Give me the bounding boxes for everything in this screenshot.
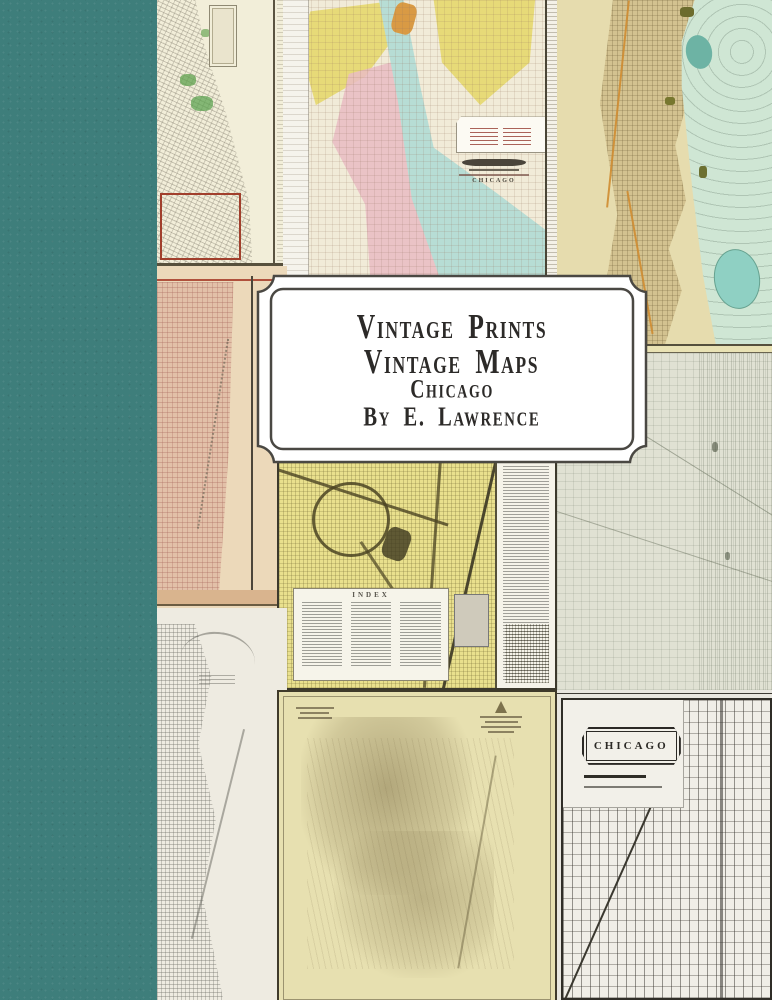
text-lines xyxy=(488,731,514,733)
cartouche-ribbon xyxy=(462,159,525,166)
inset-block xyxy=(454,594,489,646)
seal-icon xyxy=(495,701,507,713)
text-lines xyxy=(400,602,441,668)
text-lines xyxy=(480,716,522,718)
city-block-texture xyxy=(157,282,251,592)
text-lines xyxy=(485,721,518,723)
map-margin xyxy=(157,590,287,606)
title-line-3: Chicago xyxy=(410,377,494,405)
park-patch xyxy=(680,7,694,17)
map-margin xyxy=(283,0,309,284)
note-block xyxy=(296,704,335,719)
index-heading: INDEX xyxy=(294,591,449,599)
index-columns xyxy=(294,599,449,668)
dense-grid-texture xyxy=(699,353,772,690)
cartouche-title: CHICAGO xyxy=(450,178,538,184)
text-lines xyxy=(481,726,521,728)
map-tile-center-detail: INDEX xyxy=(277,456,557,690)
map-margin xyxy=(545,0,557,284)
legend-column xyxy=(503,128,531,145)
text-lines xyxy=(296,707,335,709)
park-patch xyxy=(712,442,718,452)
text-lines xyxy=(302,602,343,668)
title-plate: Vintage Prints Vintage Maps Chicago By E… xyxy=(256,274,648,464)
shoreline-shape xyxy=(219,282,251,592)
map-tile-top-left xyxy=(157,0,287,266)
avenue-line xyxy=(720,700,723,998)
legend-column xyxy=(470,128,498,145)
title-text-block: Vintage Prints Vintage Maps Chicago By E… xyxy=(256,274,648,464)
map-border-line xyxy=(557,693,772,694)
text-lines xyxy=(351,602,392,668)
red-plat-outline xyxy=(160,193,241,260)
map-border-line xyxy=(251,276,253,592)
dense-city-cluster xyxy=(505,624,549,684)
map-inset-cartouche xyxy=(209,5,237,67)
book-cover: CHICAGO xyxy=(0,0,772,1000)
map-tile-bottom-right: CHICAGO xyxy=(557,690,772,1000)
map-frame: CHICAGO xyxy=(561,698,772,1000)
author-line: By E. Lawrence xyxy=(364,403,541,433)
map-border-line xyxy=(273,0,275,266)
text-lines xyxy=(199,675,235,687)
index-panel: INDEX xyxy=(293,588,450,682)
park-patch xyxy=(725,552,730,560)
legend-line xyxy=(584,786,663,788)
survey-line-texture xyxy=(307,738,514,969)
map-tile-bottom-left xyxy=(157,608,287,1000)
legend-box xyxy=(456,116,546,153)
text-lines xyxy=(300,712,329,714)
park-patch xyxy=(699,166,707,178)
map-title-box: CHICAGO xyxy=(582,727,681,765)
book-spine xyxy=(0,0,157,1000)
map-tile-top-center: CHICAGO xyxy=(283,0,557,284)
map-title-text: CHICAGO xyxy=(594,740,669,752)
title-line-2: Vintage Maps xyxy=(364,342,539,380)
legend-line xyxy=(584,775,646,778)
survey-seal xyxy=(478,701,525,733)
park-patch xyxy=(191,96,213,111)
text-lines xyxy=(298,717,332,719)
title-line-1: Vintage Prints xyxy=(357,307,547,345)
park-patch xyxy=(665,97,675,105)
map-tile-bottom-center xyxy=(277,690,557,1000)
map-cartouche: CHICAGO xyxy=(450,159,538,184)
park-patch xyxy=(180,74,196,86)
cartouche-line xyxy=(469,169,520,171)
cartouche-line xyxy=(459,174,529,176)
